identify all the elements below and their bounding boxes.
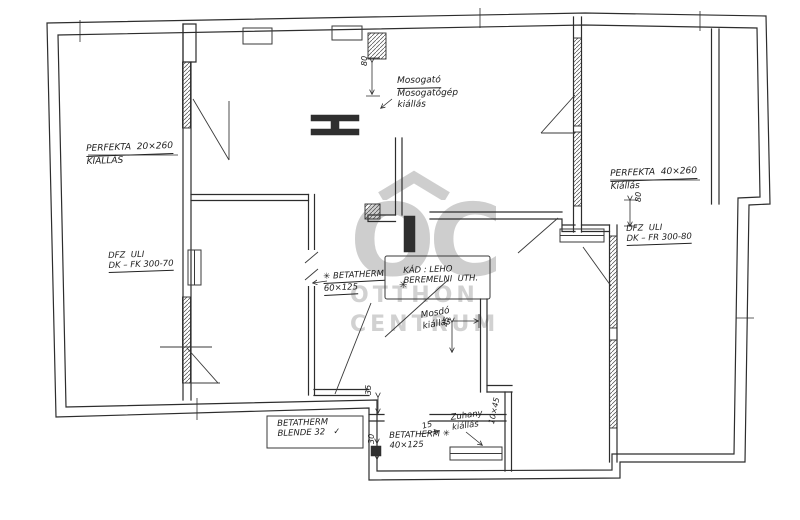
- floorplan-drawing: [0, 0, 800, 520]
- leader-arrows: [88, 99, 700, 445]
- windows: [183, 38, 618, 428]
- floorplan-scan: OC OTTHON CENTRUM: [0, 0, 800, 520]
- steel-column-icon: [311, 115, 359, 135]
- dimension-lines: [80, 8, 754, 459]
- radiators: [188, 229, 604, 460]
- door-swings: [160, 95, 611, 394]
